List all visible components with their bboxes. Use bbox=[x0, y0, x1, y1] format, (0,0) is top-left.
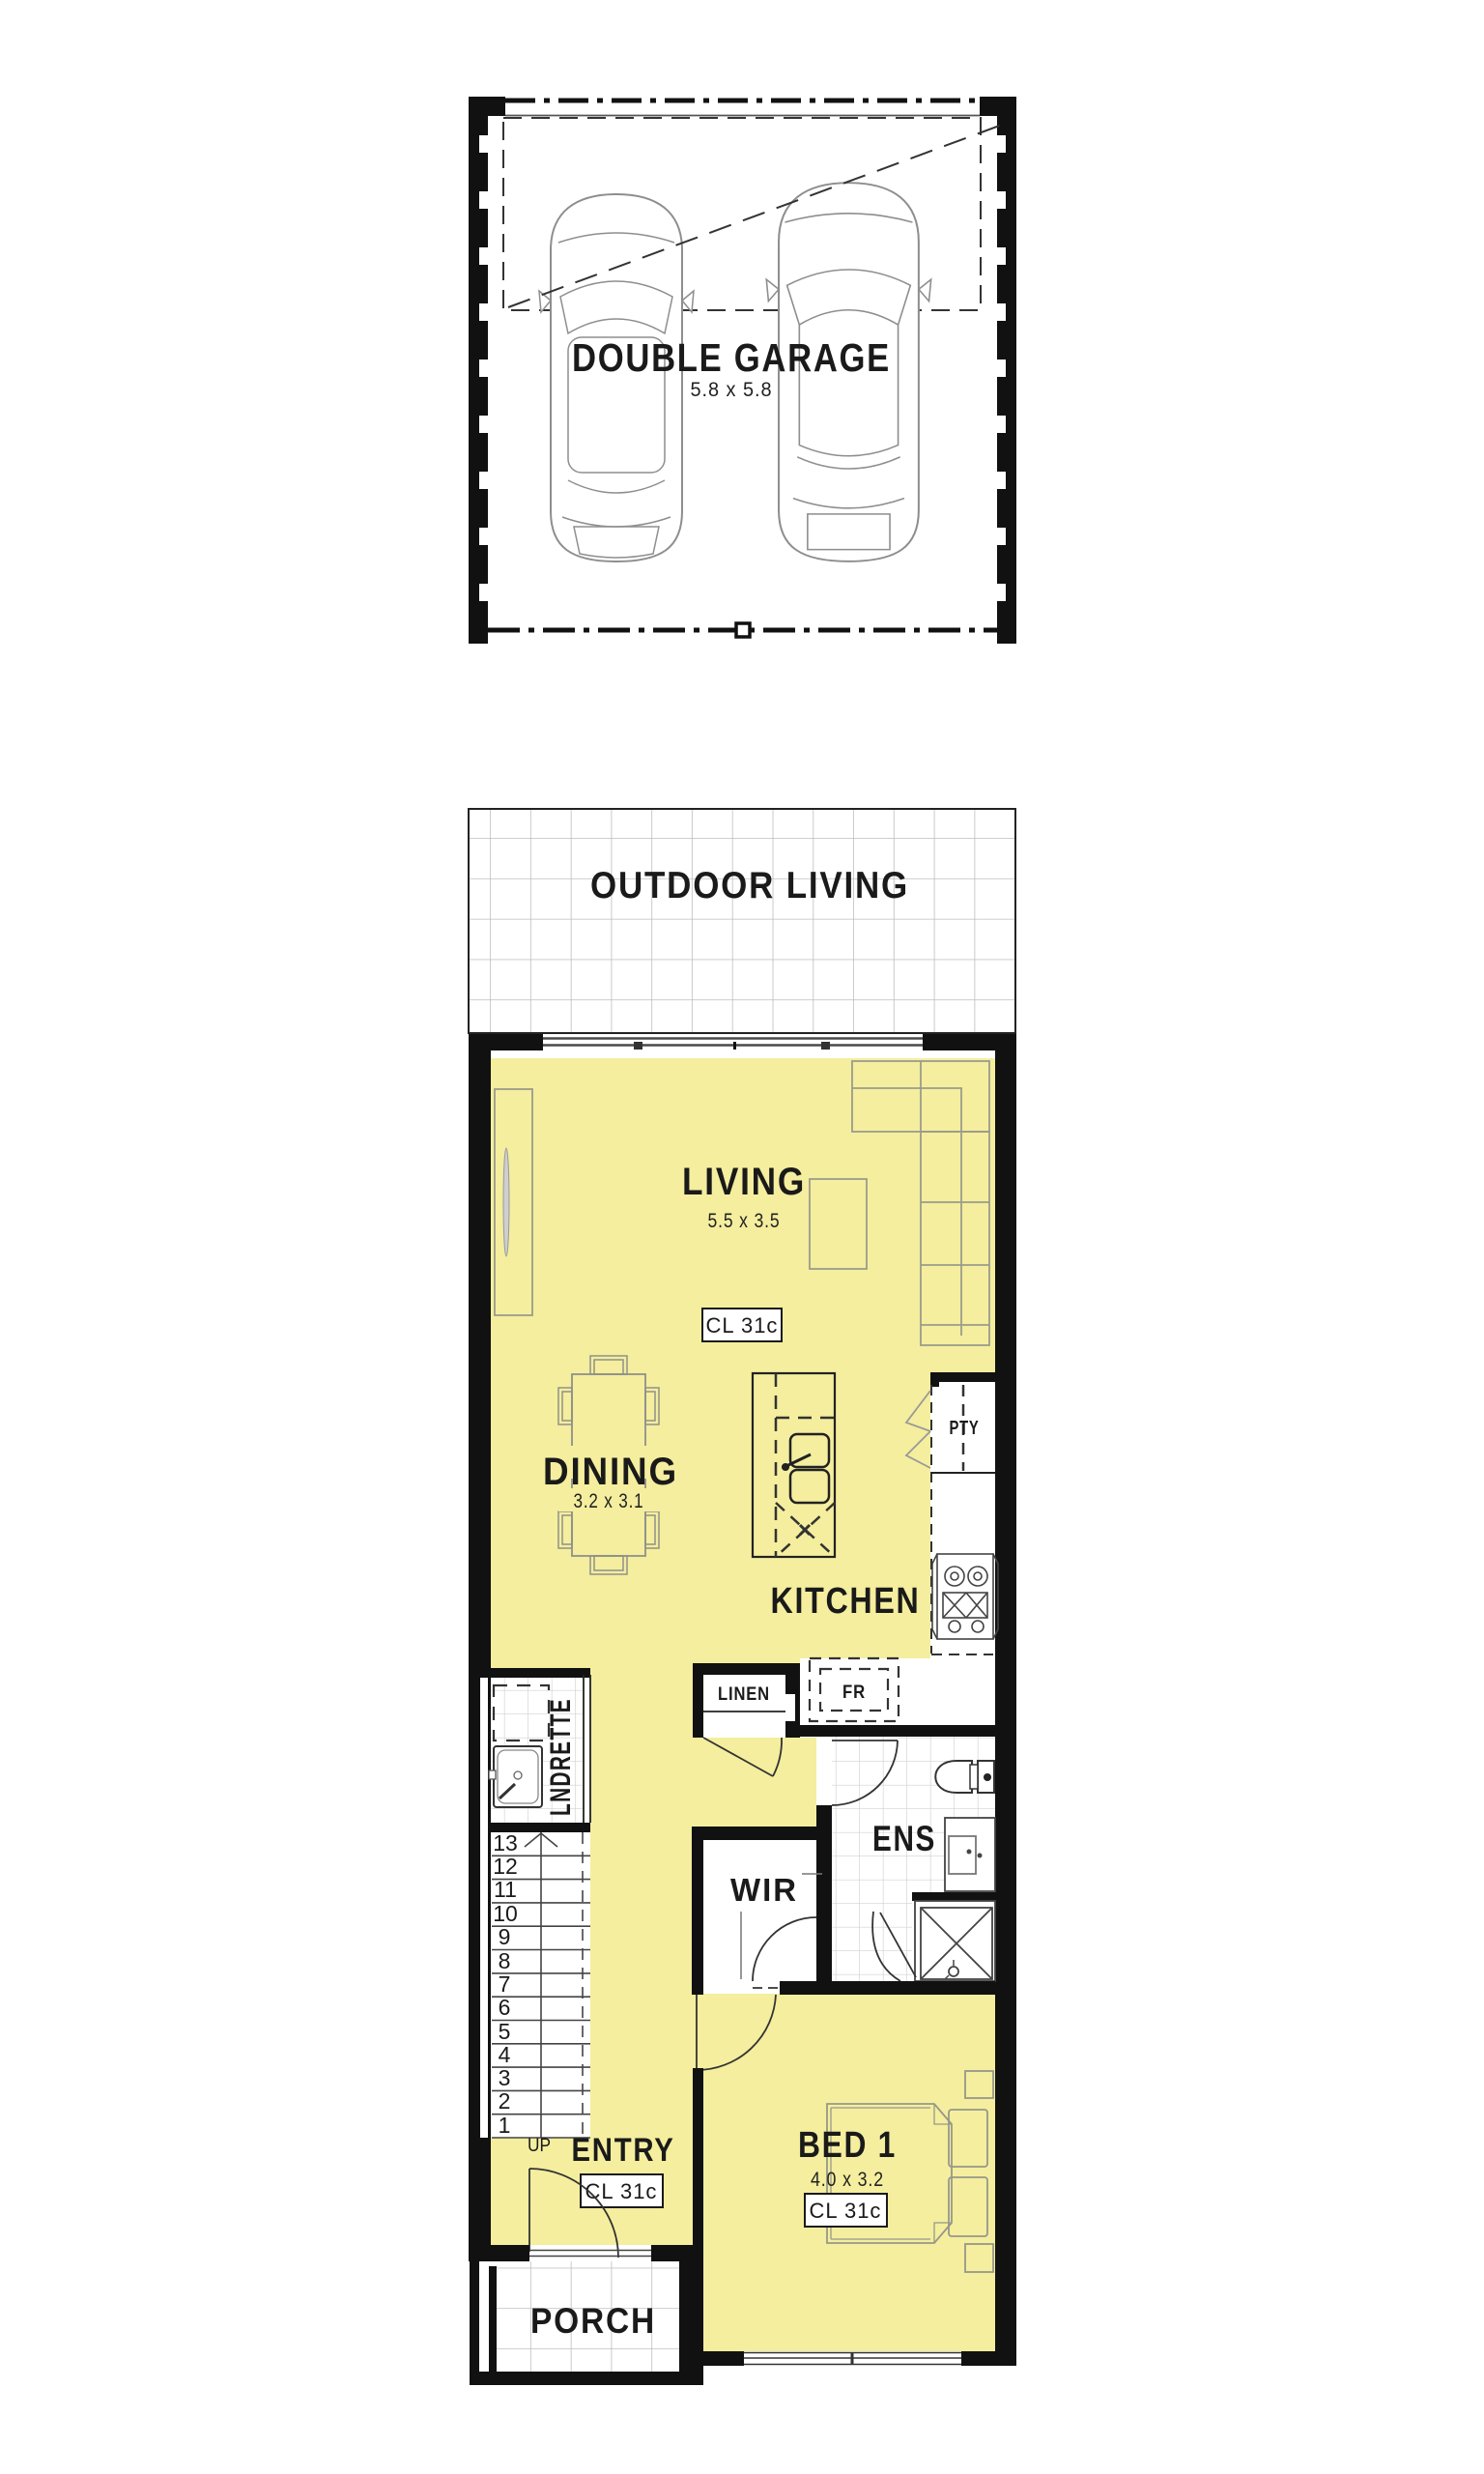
svg-text:3.2 x 3.1: 3.2 x 3.1 bbox=[574, 1490, 644, 1512]
svg-text:11: 11 bbox=[494, 1877, 517, 1902]
svg-text:PTY: PTY bbox=[950, 1418, 980, 1439]
svg-text:BED 1: BED 1 bbox=[798, 2125, 897, 2166]
svg-text:10: 10 bbox=[493, 1901, 518, 1926]
svg-text:LIVING: LIVING bbox=[682, 1161, 806, 1203]
svg-text:4.0 x 3.2: 4.0 x 3.2 bbox=[811, 2169, 884, 2191]
svg-text:9: 9 bbox=[499, 1924, 511, 1949]
svg-text:UP: UP bbox=[528, 2136, 551, 2156]
svg-text:3: 3 bbox=[499, 2065, 511, 2090]
svg-text:DINING: DINING bbox=[543, 1451, 678, 1493]
svg-text:6: 6 bbox=[499, 1995, 511, 2020]
svg-text:7: 7 bbox=[499, 1971, 511, 1997]
svg-text:12: 12 bbox=[493, 1854, 518, 1879]
svg-text:8: 8 bbox=[499, 1948, 511, 1973]
svg-text:4: 4 bbox=[499, 2042, 511, 2067]
svg-text:DOUBLE GARAGE: DOUBLE GARAGE bbox=[572, 335, 891, 380]
svg-text:OUTDOOR LIVING: OUTDOOR LIVING bbox=[590, 865, 909, 906]
svg-text:PORCH: PORCH bbox=[530, 2301, 656, 2341]
svg-text:5.8 x 5.8: 5.8 x 5.8 bbox=[691, 379, 773, 401]
svg-text:2: 2 bbox=[499, 2088, 511, 2114]
svg-text:ENS: ENS bbox=[872, 1819, 936, 1858]
svg-text:CL 31c: CL 31c bbox=[810, 2199, 882, 2223]
svg-text:1: 1 bbox=[499, 2113, 511, 2138]
svg-text:KITCHEN: KITCHEN bbox=[771, 1581, 921, 1622]
svg-text:FR: FR bbox=[842, 1683, 866, 1703]
svg-text:LINEN: LINEN bbox=[718, 1684, 770, 1705]
svg-text:5.5 x 3.5: 5.5 x 3.5 bbox=[708, 1210, 781, 1232]
svg-text:LNDRETTE: LNDRETTE bbox=[545, 1698, 577, 1816]
svg-text:ENTRY: ENTRY bbox=[572, 2132, 675, 2169]
svg-text:CL 31c: CL 31c bbox=[706, 1313, 779, 1338]
svg-text:WIR: WIR bbox=[730, 1872, 798, 1908]
svg-text:5: 5 bbox=[499, 2019, 511, 2044]
svg-text:13: 13 bbox=[493, 1830, 518, 1855]
